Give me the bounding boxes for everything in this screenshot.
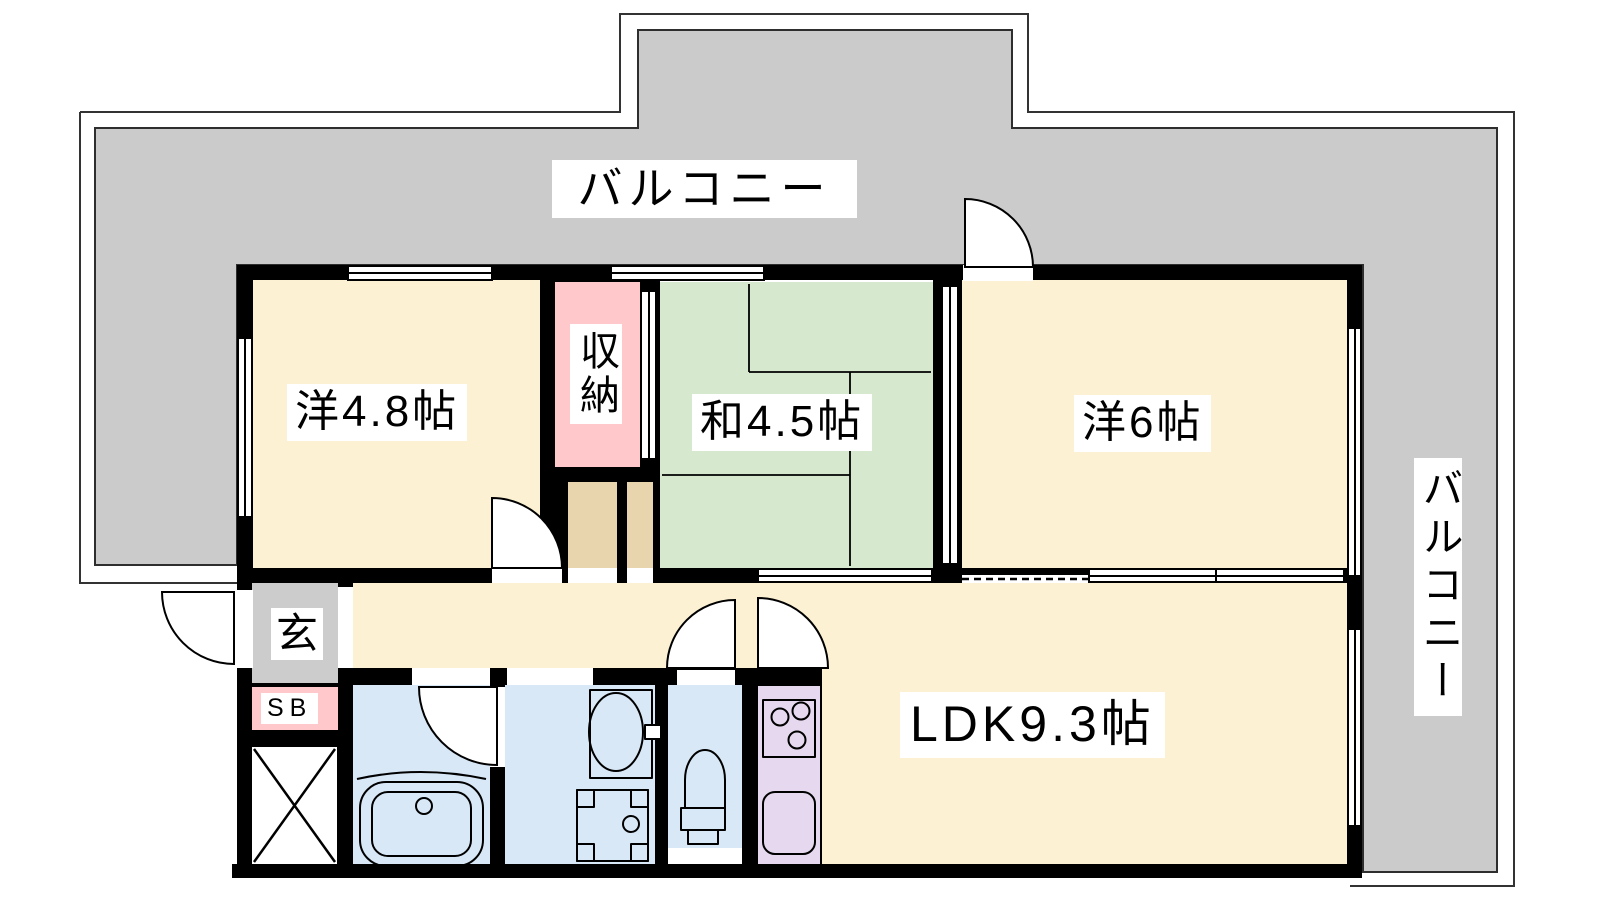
entrance-corridor-gap [338, 587, 353, 668]
window-left-west48 [237, 337, 253, 518]
washroom [505, 685, 655, 864]
closet-opening-left [568, 568, 617, 583]
pipe-space [252, 747, 337, 864]
entry-door-gap [237, 590, 253, 668]
closet-lower-left [568, 482, 617, 568]
kitchen-counter [758, 686, 820, 864]
floor-plan: バルコニー バルコニー 洋4.8帖 収納 和4.5帖 洋6帖 玄 SB LDK9… [0, 0, 1600, 900]
balcony-doorway [963, 265, 1033, 281]
closet-lower-right [627, 482, 653, 568]
toilet-doorway [677, 670, 735, 685]
label-shoe-box: SB [261, 693, 318, 724]
wall-bottom [232, 864, 1362, 878]
bath-door-slot [490, 687, 505, 767]
sliding-storage [640, 290, 657, 460]
label-ldk: LDK9.3帖 [900, 692, 1165, 758]
door-arc-balcony [965, 199, 1033, 267]
toilet-niche [668, 848, 742, 864]
door-arc-entry [162, 592, 234, 664]
window-right-ldk [1347, 628, 1362, 827]
sliding-west6-ldk-divider [1215, 568, 1217, 583]
label-balcony-top: バルコニー [552, 160, 857, 218]
label-balcony-right: バルコニー [1414, 458, 1462, 716]
label-storage: 収納 [570, 324, 622, 424]
sliding-japanese-west6 [941, 285, 959, 565]
closet-opening-right [627, 568, 653, 583]
label-western-6: 洋6帖 [1074, 395, 1211, 452]
bathroom [353, 685, 490, 864]
label-western-4-8: 洋4.8帖 [287, 384, 467, 441]
label-entrance: 玄 [271, 608, 323, 660]
washroom-doorway [507, 668, 593, 685]
sliding-shoji-japanese [757, 568, 933, 583]
bath-doorway [412, 668, 490, 685]
label-japanese-4-5: 和4.5帖 [692, 394, 872, 451]
west48-doorway [492, 568, 562, 583]
toilet-room [668, 685, 742, 848]
window-top-west48 [347, 265, 493, 281]
window-top-japanese [610, 265, 765, 281]
ldk-dashed-opening [962, 575, 1088, 583]
corridor [353, 583, 1347, 668]
window-right-west6 [1347, 327, 1362, 577]
